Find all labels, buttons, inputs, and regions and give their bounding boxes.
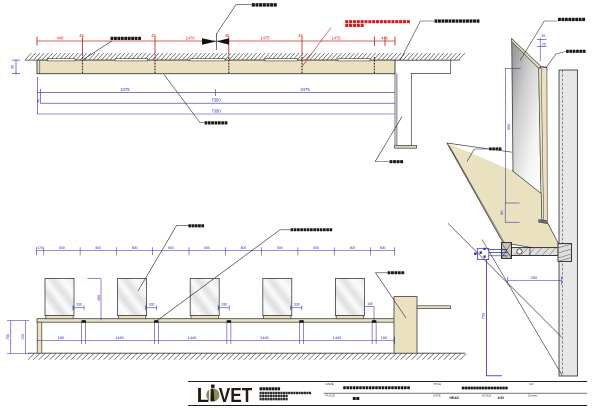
svg-text:150: 150 — [381, 335, 388, 340]
svg-text:SCALE: SCALE — [482, 393, 492, 397]
svg-text:1470: 1470 — [185, 36, 195, 41]
svg-text:1440: 1440 — [115, 335, 124, 340]
svg-text:750: 750 — [480, 312, 485, 319]
svg-text:30: 30 — [11, 65, 15, 69]
svg-text:1/30: 1/30 — [498, 396, 505, 400]
svg-text:7350: 7350 — [211, 98, 221, 103]
svg-text:25: 25 — [541, 34, 545, 38]
svg-text:500: 500 — [313, 246, 319, 250]
svg-text:40: 40 — [36, 99, 40, 103]
svg-text:45: 45 — [225, 33, 230, 38]
svg-text:500: 500 — [95, 246, 101, 250]
svg-text:2475: 2475 — [120, 87, 130, 92]
svg-text:45: 45 — [298, 33, 303, 38]
svg-text:500: 500 — [168, 246, 174, 250]
svg-text:900: 900 — [507, 124, 511, 130]
svg-text:330: 330 — [149, 303, 155, 307]
svg-text:NO: NO — [529, 382, 534, 386]
svg-text:1440: 1440 — [333, 335, 342, 340]
svg-text:PLACE: PLACE — [325, 393, 335, 397]
svg-text:1440: 1440 — [260, 335, 269, 340]
svg-text:150: 150 — [58, 335, 65, 340]
svg-text:750: 750 — [6, 334, 10, 340]
svg-text:500: 500 — [204, 246, 210, 250]
svg-text:60: 60 — [500, 210, 504, 214]
svg-text:DATE: DATE — [433, 393, 441, 397]
svg-text:500: 500 — [59, 246, 65, 250]
svg-text:500: 500 — [350, 246, 356, 250]
svg-text:7350: 7350 — [211, 109, 221, 114]
svg-text:TITLE: TITLE — [433, 382, 441, 386]
svg-text:NAME: NAME — [325, 382, 333, 386]
svg-text:Drawer: Drawer — [528, 393, 537, 397]
svg-text:250: 250 — [531, 275, 538, 280]
svg-text:2475: 2475 — [300, 87, 310, 92]
svg-text:330: 330 — [76, 303, 82, 307]
svg-text:500: 500 — [241, 246, 247, 250]
svg-text:500: 500 — [380, 246, 386, 250]
svg-text:25: 25 — [542, 42, 546, 46]
svg-text:440: 440 — [381, 36, 389, 41]
svg-text:VET: VET — [219, 385, 253, 407]
svg-text:HEAD: HEAD — [450, 396, 460, 400]
svg-text:500: 500 — [277, 246, 283, 250]
svg-text:45: 45 — [79, 33, 84, 38]
svg-text:170: 170 — [37, 246, 43, 250]
svg-text:45: 45 — [151, 33, 156, 38]
svg-text:1475: 1475 — [331, 36, 341, 41]
svg-text:720: 720 — [21, 334, 25, 340]
svg-text:500: 500 — [132, 246, 138, 250]
svg-text:440: 440 — [57, 36, 65, 41]
svg-text:330: 330 — [221, 303, 227, 307]
svg-text:330: 330 — [294, 303, 300, 307]
svg-text:1475: 1475 — [260, 36, 270, 41]
svg-text:100: 100 — [367, 302, 373, 306]
svg-text:400: 400 — [97, 295, 101, 301]
svg-text:1440: 1440 — [188, 335, 197, 340]
